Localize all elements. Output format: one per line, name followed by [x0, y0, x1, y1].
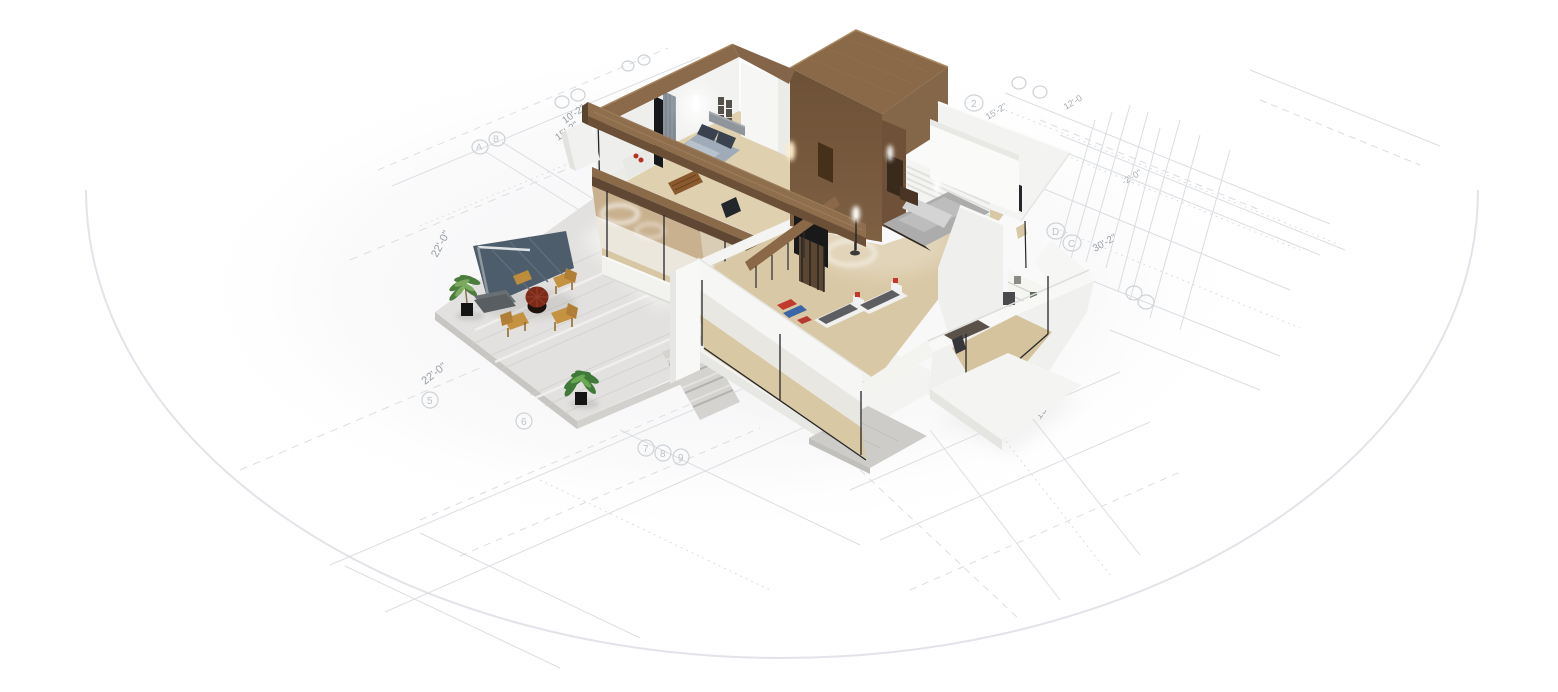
svg-text:A: A [476, 142, 482, 152]
svg-text:5: 5 [427, 396, 433, 407]
svg-text:B: B [493, 134, 499, 144]
svg-text:C: C [1068, 239, 1075, 250]
svg-text:6: 6 [521, 417, 527, 428]
svg-text:9: 9 [678, 453, 684, 464]
svg-text:D: D [1052, 227, 1059, 238]
svg-text:7: 7 [643, 444, 649, 455]
svg-text:8: 8 [660, 449, 666, 460]
svg-text:2: 2 [971, 99, 977, 110]
